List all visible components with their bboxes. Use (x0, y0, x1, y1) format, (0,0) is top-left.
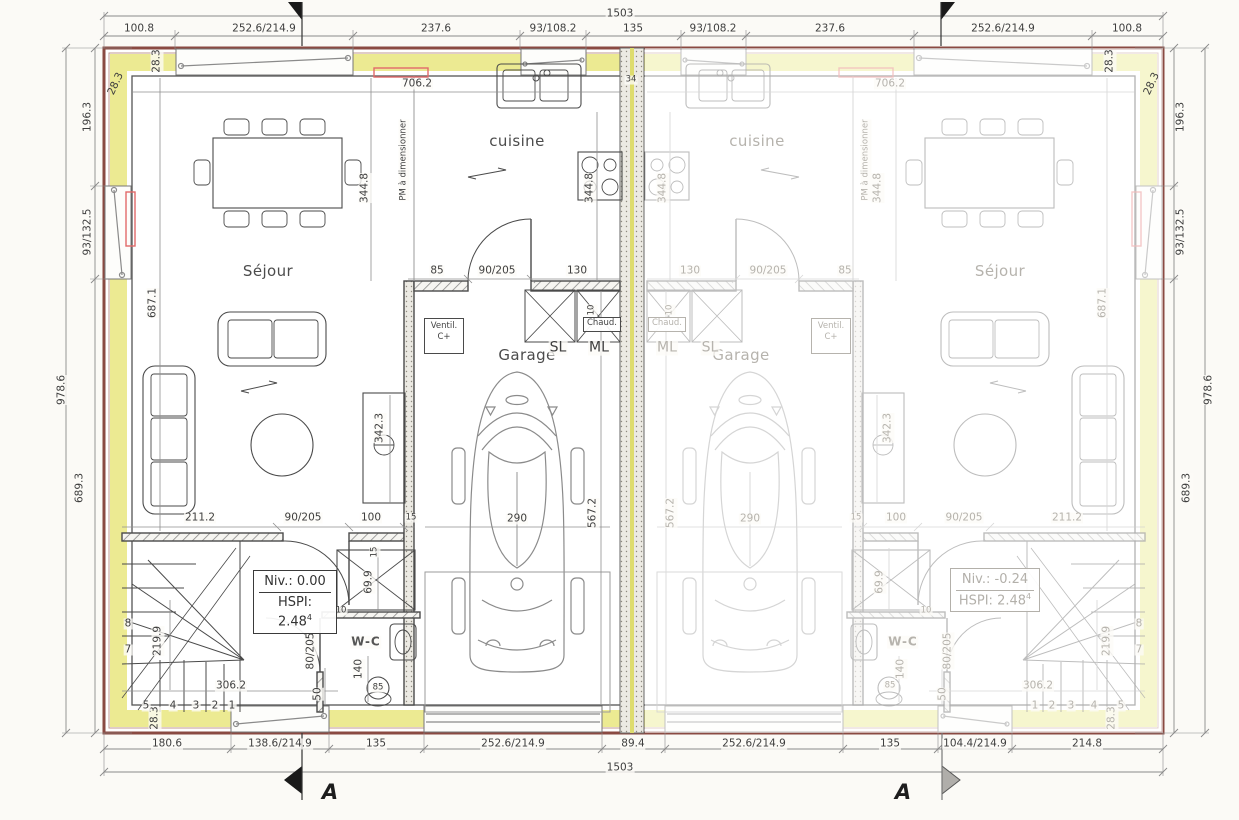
dim-10-chaud-left: 10 (587, 305, 598, 316)
dim-90205-cuisine-right: 90/205 (749, 265, 788, 276)
dim-top-4: 135 (622, 23, 644, 34)
dim-283-tr-b: 28.3 (1103, 49, 1116, 72)
dim-10-wc-right: 10 (920, 607, 933, 616)
dim-10-chaud-right: 10 (665, 305, 676, 316)
dim-bottom-6: 135 (879, 738, 901, 749)
dim-100-left: 100 (360, 512, 382, 523)
dim-140-right: 140 (894, 659, 907, 679)
stair-7-left: 7 (124, 644, 133, 655)
dim-top-1: 252.6/214.9 (231, 23, 297, 34)
dim-5672-right: 567.2 (664, 498, 677, 528)
dim-90205-sejour-left: 90/205 (284, 512, 323, 523)
dim-344b-left: 344.8 (583, 173, 596, 203)
dim-top-8: 100.8 (1111, 23, 1143, 34)
section-label-a-left: A (321, 781, 339, 803)
niv-value-left: Niv.: 0.00 (259, 572, 331, 592)
section-flag-top-right (941, 2, 955, 20)
chaud-box-left: Chaud. (583, 317, 621, 332)
ventil-box-left: Ventil.C+ (424, 318, 464, 354)
dim-687-right: 687.1 (1096, 288, 1109, 318)
dim-left-93: 93/132.5 (81, 209, 94, 256)
hspi-value-left: HSPI: 2.484 (259, 592, 331, 632)
section-label-a-right: A (894, 781, 912, 803)
stair-5-right: 5 (1117, 700, 1126, 711)
dim-top-7: 252.6/214.9 (970, 23, 1036, 34)
dim-bottom-2: 135 (365, 738, 387, 749)
dim-706-left: 706.2 (401, 78, 433, 89)
dim-50-left: 50 (311, 687, 324, 700)
stair-2-right: 2 (1048, 700, 1057, 711)
dim-15b-left: 15 (370, 547, 381, 558)
dim-bottom-7: 104.4/214.9 (942, 738, 1008, 749)
stair-1-right: 1 (1031, 700, 1040, 711)
dim-85-toilet-right: 85 (884, 682, 897, 691)
dim-290-right: 290 (739, 513, 761, 524)
dim-342-right: 342.3 (881, 413, 894, 443)
dim-344b-right: 344.8 (871, 173, 884, 203)
stair-1-left: 1 (228, 700, 237, 711)
room-label-garage-right: Garage (711, 348, 770, 364)
dim-overall-top: 1503 (606, 8, 635, 19)
dim-3062-right: 306.2 (1022, 680, 1054, 691)
dim-130-right: 130 (679, 265, 701, 276)
dim-706-right: 706.2 (874, 78, 906, 89)
dim-80205-right: 80/205 (941, 633, 954, 670)
label-ml-left: ML (588, 341, 610, 356)
dim-bottom-4: 89.4 (620, 738, 645, 749)
dim-290-left: 290 (506, 513, 528, 524)
dim-130-left: 130 (566, 265, 588, 276)
dim-85-cuisine-right: 85 (837, 265, 852, 276)
party-wall (620, 48, 644, 733)
dim-bottom-8: 214.8 (1071, 738, 1103, 749)
dim-2199-right: 219.9 (1100, 626, 1113, 656)
stair-3-right: 3 (1067, 700, 1076, 711)
section-flag-bottom-left (284, 766, 302, 794)
dim-left-196: 196.3 (81, 102, 94, 132)
dim-top-3: 93/108.2 (529, 23, 578, 34)
dim-right-196: 196.3 (1174, 102, 1187, 132)
stair-3-left: 3 (192, 700, 201, 711)
floor-plan-drawing (0, 0, 1239, 820)
dim-left-689: 689.3 (73, 473, 86, 503)
dim-90205-cuisine-left: 90/205 (478, 265, 517, 276)
level-box-right: Niv.: -0.24 HSPI: 2.484 (950, 568, 1040, 612)
dim-140-left: 140 (352, 659, 365, 679)
dim-bottom-5: 252.6/214.9 (721, 738, 787, 749)
dim-90205-sejour-right: 90/205 (945, 512, 984, 523)
room-label-cuisine-right: cuisine (728, 134, 785, 150)
room-label-sejour-right: Séjour (974, 264, 1026, 280)
right-unit-fade-overlay (645, 48, 1163, 733)
dim-left-978: 978.6 (55, 375, 68, 405)
label-pm-left: PM à dimensionner (399, 119, 410, 200)
dim-top-0: 100.8 (123, 23, 155, 34)
ventil-box-right: Ventil.C+ (811, 318, 851, 354)
dim-342-left: 342.3 (373, 413, 386, 443)
stair-2-left: 2 (211, 700, 220, 711)
dim-bottom-1: 138.6/214.9 (247, 738, 313, 749)
stair-7-right: 7 (1135, 644, 1144, 655)
dim-699-right: 69.9 (873, 570, 886, 593)
dim-100-right: 100 (885, 512, 907, 523)
dim-15-right: 15 (850, 514, 863, 523)
dim-right-689: 689.3 (1180, 473, 1193, 503)
dim-85-cuisine-left: 85 (429, 265, 444, 276)
label-ml-right: ML (656, 341, 678, 356)
section-flag-bottom-right (942, 766, 960, 794)
dim-top-5: 93/108.2 (689, 23, 738, 34)
label-sl-right: SL (701, 341, 720, 356)
room-label-wc-left: W-C (350, 636, 381, 649)
dim-overall-bottom: 1503 (606, 762, 635, 773)
dim-283-tl-b: 28.3 (150, 49, 163, 72)
stair-4-right: 4 (1090, 700, 1099, 711)
hspi-value-right: HSPI: 2.484 (956, 590, 1034, 611)
dim-bottom-3: 252.6/214.9 (480, 738, 546, 749)
dim-right-978: 978.6 (1202, 375, 1215, 405)
dim-top-6: 237.6 (814, 23, 846, 34)
niv-value-right: Niv.: -0.24 (956, 570, 1034, 590)
room-label-cuisine-left: cuisine (488, 134, 545, 150)
label-sl-left: SL (549, 341, 568, 356)
stair-4-left: 4 (169, 700, 178, 711)
dim-bottom-0: 180.6 (151, 738, 183, 749)
section-flag-top-left (288, 2, 302, 20)
dim-283-bl: 28.3 (148, 706, 161, 729)
chaud-box-right: Chaud. (648, 317, 686, 332)
label-pm-right: PM à dimensionner (861, 119, 872, 200)
dim-344a-left: 344.8 (358, 173, 371, 203)
dim-80205-left: 80/205 (304, 633, 317, 670)
dim-687-left: 687.1 (146, 288, 159, 318)
dim-2112-left: 211.2 (184, 512, 216, 523)
dim-right-93: 93/132.5 (1174, 209, 1187, 256)
stair-8-left: 8 (124, 618, 133, 629)
dim-3062-left: 306.2 (215, 680, 247, 691)
stair-8-right: 8 (1135, 618, 1144, 629)
stair-5-left: 5 (142, 700, 151, 711)
dim-5672-left: 567.2 (586, 498, 599, 528)
dim-15-left: 15 (405, 514, 418, 523)
dim-50-right: 50 (936, 687, 949, 700)
dim-85-toilet-left: 85 (372, 684, 385, 693)
dim-34-party-wall: 34 (625, 76, 638, 85)
dim-2199-left: 219.9 (151, 626, 164, 656)
floor-plan-page: 1503 100.8 252.6/214.9 237.6 93/108.2 13… (0, 0, 1239, 820)
dim-top-2: 237.6 (420, 23, 452, 34)
dim-2112-right: 211.2 (1051, 512, 1083, 523)
dim-699-left: 69.9 (362, 570, 375, 593)
dim-344a-right: 344.8 (656, 173, 669, 203)
room-label-wc-right: W-C (887, 636, 918, 649)
level-box-left: Niv.: 0.00 HSPI: 2.484 (253, 570, 337, 634)
room-label-sejour-left: Séjour (242, 264, 294, 280)
